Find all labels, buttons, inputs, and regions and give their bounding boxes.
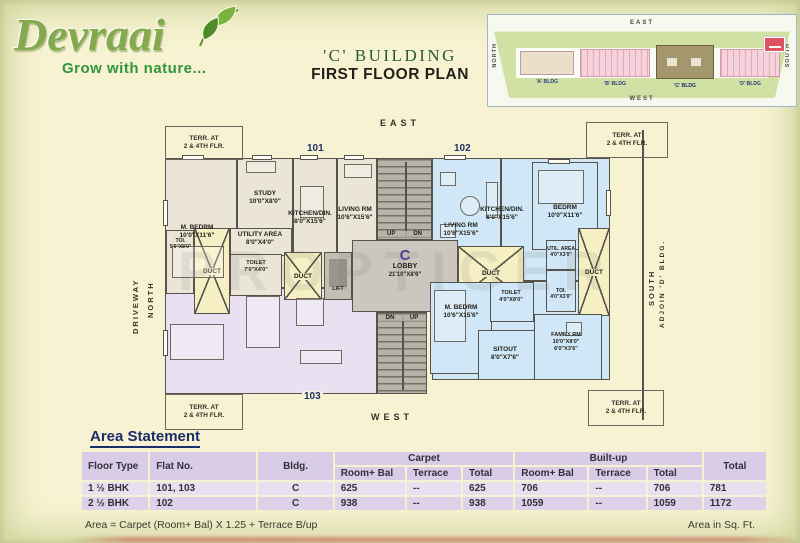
col-carpet-total: Total	[463, 467, 513, 480]
furniture-chair	[440, 172, 456, 186]
plot-boundary-line	[642, 130, 644, 420]
terrace-text: 2 & 4TH FLR.	[184, 412, 224, 420]
watermark: PROPTIGER	[178, 238, 616, 303]
room-label-102-mbedrm: M. BEDRM10'6"X15'6"	[432, 304, 490, 320]
plan-driveway-label: DRIVEWAY	[131, 238, 140, 334]
col-grand-total: Total	[704, 452, 766, 480]
cell-builtup-room-bal: 1059	[515, 497, 587, 510]
key-plan-label-a: 'A' BLDG	[526, 79, 569, 84]
terrace-text: 2 & 4TH FLR.	[606, 408, 646, 416]
key-plan-north: NORTH	[492, 43, 498, 68]
cell-builtup-terrace: --	[589, 497, 645, 510]
terrace-bottom-left: TERR. AT2 & 4TH FLR.	[165, 394, 243, 430]
key-plan: 'A' BLDG 'B' BLDG 'C' BLDG 'D' BLDG EAST…	[487, 14, 797, 107]
cell-bldg: C	[258, 482, 332, 495]
area-statement-table: Floor Type Flat No. Bldg. Carpet Built-u…	[80, 450, 768, 512]
col-carpet-room-bal: Room+ Bal	[335, 467, 405, 480]
key-plan-bldg-a	[520, 51, 574, 75]
developer-logo-mark	[764, 37, 785, 52]
furniture-desk	[246, 161, 276, 173]
window	[344, 155, 364, 160]
furniture-bed	[170, 324, 224, 360]
cell-carpet-room-bal: 625	[335, 482, 405, 495]
stairs-up-label: UP	[387, 231, 395, 237]
key-plan-bldg-d	[720, 49, 780, 77]
flat-101-label: 101	[305, 143, 326, 154]
col-builtup-total: Total	[648, 467, 702, 480]
cell-grand-total: 1172	[704, 497, 766, 510]
area-unit-note: Area in Sq. Ft.	[560, 519, 755, 531]
cell-carpet-total: 625	[463, 482, 513, 495]
leaf-icon	[192, 4, 244, 48]
room-label-101-study: STUDY10'0"X8'0"	[240, 190, 290, 206]
col-builtup-terrace: Terrace	[589, 467, 645, 480]
col-bldg: Bldg.	[258, 452, 332, 480]
cell-carpet-room-bal: 938	[335, 497, 405, 510]
furniture-sofa	[344, 164, 372, 178]
cell-carpet-terrace: --	[407, 482, 461, 495]
room-label-102-bedrm: BEDRM10'0"X11'6"	[534, 204, 596, 220]
flat-102-label: 102	[452, 143, 473, 154]
cell-grand-total: 781	[704, 482, 766, 495]
col-carpet-terrace: Terrace	[407, 467, 461, 480]
col-builtup-room-bal: Room+ Bal	[515, 467, 587, 480]
cell-builtup-total: 706	[648, 482, 702, 495]
key-plan-bldg-b	[580, 49, 650, 77]
window	[548, 159, 570, 164]
bottom-edge-smudge	[70, 537, 800, 542]
staircase-bottom: DNUP	[377, 312, 427, 394]
key-plan-label-b: 'B' BLDG	[587, 81, 643, 86]
terrace-text: TERR. AT	[189, 404, 218, 412]
furniture-bed	[538, 170, 584, 204]
stairs-dn-label: DN	[413, 231, 422, 237]
furniture-sofa	[300, 350, 342, 364]
area-formula-note: Area = Carpet (Room+ Bal) X 1.25 + Terra…	[85, 519, 317, 531]
area-statement-title: Area Statement	[90, 428, 200, 448]
room-label-102-kitchen: KITCHEN/DIN.8'0"X15'6"	[476, 206, 528, 222]
plan-east-label: EAST	[360, 118, 440, 128]
terrace-text: 2 & 4TH FLR.	[184, 143, 224, 151]
plan-adjoin-label: ADJOIN 'D' BLDG.	[659, 228, 666, 328]
brand-logo: Devraai Grow with nature...	[14, 12, 254, 77]
room-label-102-family: FAMILY RM10'0"X8'0"6'0"X3'6"	[532, 332, 600, 353]
room-label-102-sitout: SITOUT8'0"X7'6"	[478, 346, 532, 362]
cell-builtup-terrace: --	[589, 482, 645, 495]
window	[300, 155, 318, 160]
building-title: 'C' BUILDING	[280, 46, 500, 66]
col-builtup-group: Built-up	[515, 452, 702, 465]
terrace-bottom-right: TERR. AT2 & 4TH FLR.	[588, 390, 664, 426]
cell-carpet-total: 938	[463, 497, 513, 510]
key-plan-west: WEST	[488, 96, 796, 102]
brand-tagline: Grow with nature...	[62, 60, 254, 77]
window	[444, 155, 466, 160]
cell-flat-no: 101, 103	[150, 482, 256, 495]
terrace-top-left: TERR. AT2 & 4TH FLR.	[165, 126, 243, 160]
key-plan-east: EAST	[488, 20, 796, 26]
staircase-top: UPDN	[377, 158, 432, 240]
key-plan-label-d: 'D' BLDG	[726, 81, 774, 86]
plan-title: FIRST FLOOR PLAN	[280, 66, 500, 84]
cell-floor-type: 1 ½ BHK	[82, 482, 148, 495]
flat-103-label: 103	[302, 391, 323, 402]
col-flat-no: Flat No.	[150, 452, 256, 480]
terrace-top-right: TERR. AT2 & 4TH FLR.	[586, 122, 668, 158]
cell-flat-no: 102	[150, 497, 256, 510]
room-label-101-living: LIVING RM10'6"X15'6"	[332, 206, 378, 222]
terrace-text: 2 & 4TH FLR.	[607, 140, 647, 148]
room-label-101-kitchen: KITCHEN/DIN.8'0"X15'6"	[284, 210, 336, 226]
cell-floor-type: 2 ½ BHK	[82, 497, 148, 510]
key-plan-bldg-c	[656, 45, 714, 79]
col-carpet-group: Carpet	[335, 452, 514, 465]
terrace-text: TERR. AT	[189, 135, 218, 143]
window	[606, 190, 611, 216]
terrace-text: TERR. AT	[611, 400, 640, 408]
plan-west-label: WEST	[352, 412, 432, 422]
cell-builtup-total: 1059	[648, 497, 702, 510]
stairs-dn-label: DN	[386, 315, 395, 321]
terrace-text: TERR. AT	[612, 132, 641, 140]
window	[163, 200, 168, 226]
cell-carpet-terrace: --	[407, 497, 461, 510]
room-label-102-living: LIVING RM10'6"X15'6"	[434, 222, 488, 238]
stairs-up-label: UP	[410, 315, 418, 321]
key-plan-label-c: 'C' BLDG	[660, 83, 709, 88]
plan-south-label: SOUTH	[647, 244, 656, 306]
plan-north-label: NORTH	[146, 254, 155, 318]
col-floor-type: Floor Type	[82, 452, 148, 480]
table-row: 1 ½ BHK 101, 103 C 625 -- 625 706 -- 706…	[82, 482, 766, 495]
window	[252, 155, 272, 160]
furniture-bed	[246, 296, 280, 348]
key-plan-south: SOUTH	[785, 43, 791, 67]
cell-bldg: C	[258, 497, 332, 510]
floor-plan-page: Devraai Grow with nature... 'C' BUILDING…	[0, 0, 800, 543]
table-row: 2 ½ BHK 102 C 938 -- 938 1059 -- 1059 11…	[82, 497, 766, 510]
window	[163, 330, 168, 356]
cell-builtup-room-bal: 706	[515, 482, 587, 495]
